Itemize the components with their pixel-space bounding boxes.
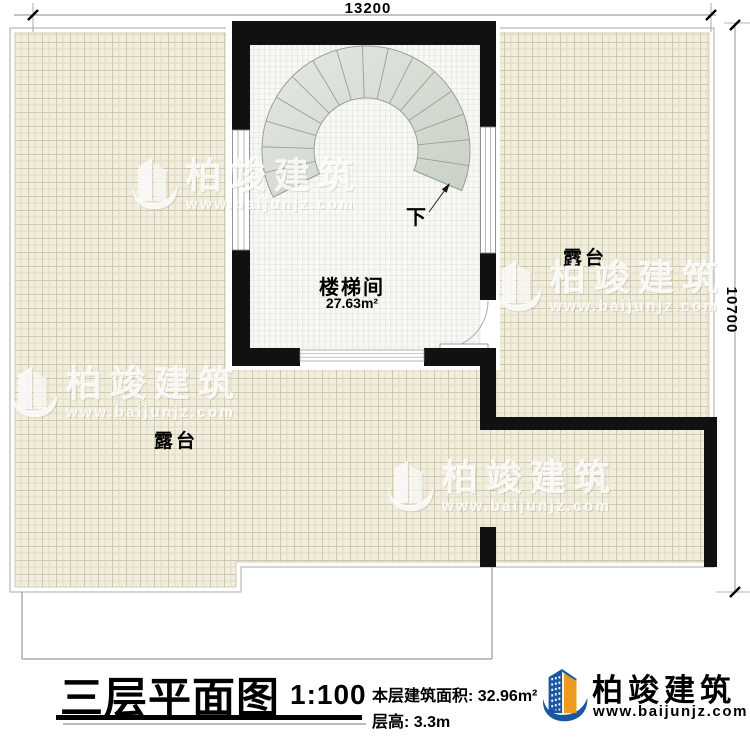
- wall-stub: [480, 527, 496, 567]
- wall-top: [232, 21, 496, 45]
- wall-terrace-divider: [480, 417, 717, 430]
- dimension-right-label: 10700: [724, 281, 740, 339]
- wall-right-edge: [704, 430, 717, 567]
- wall-left-upper: [232, 45, 250, 130]
- company-url: www.baijunjz.com: [593, 703, 748, 720]
- wall-right-mid: [480, 253, 496, 300]
- company-logo-icon: [536, 662, 590, 730]
- floor-area-label: 本层建筑面积: 32.96m²: [372, 682, 537, 706]
- floor-height-label: 层高: 3.3m: [372, 708, 450, 732]
- stairwell-area-label: 27.63m²: [300, 295, 404, 311]
- wall-right-upper: [480, 45, 496, 127]
- terrace-left-label: 露台: [136, 426, 216, 453]
- plan-drawing: [0, 0, 750, 662]
- wall-bottom-right: [424, 348, 496, 366]
- window-bottom: [300, 350, 424, 361]
- title-underline-shadow: [63, 723, 366, 725]
- title-underline: [56, 715, 362, 720]
- wall-bottom-left: [232, 348, 300, 366]
- window-left: [233, 130, 250, 250]
- floor-plan-page: 13200 10700 楼梯间 27.63m² 下 露台 露台 柏竣建筑 www…: [0, 0, 750, 740]
- dimension-top-label: 13200: [328, 0, 408, 17]
- window-right: [481, 127, 496, 253]
- terrace-right-label: 露台: [545, 243, 625, 270]
- stair-down-label: 下: [406, 201, 426, 230]
- scale-label: 1:100: [290, 679, 367, 711]
